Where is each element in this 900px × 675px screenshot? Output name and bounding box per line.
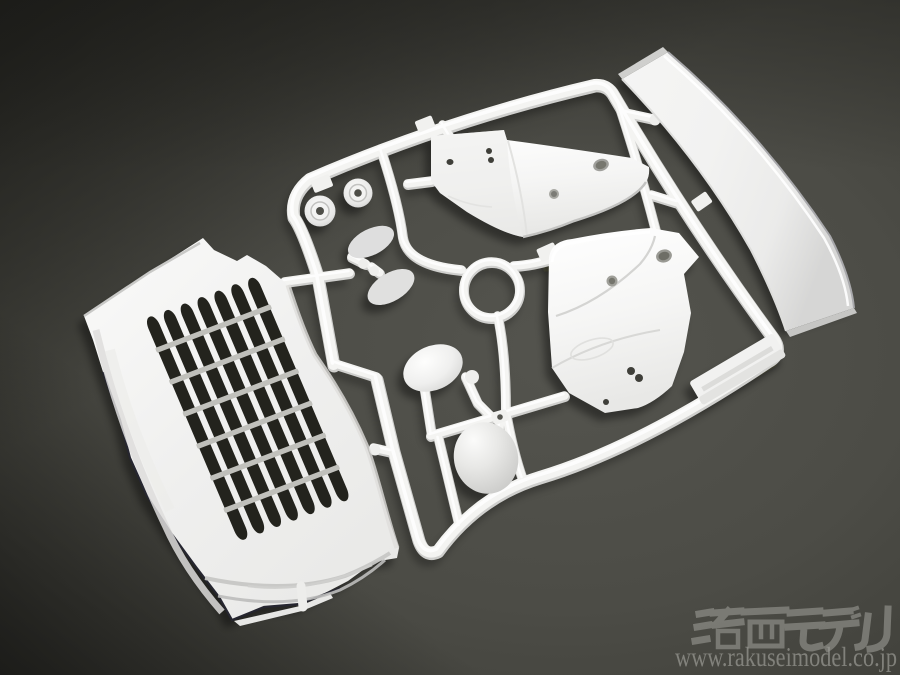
svg-text:www.rakuseimodel.co.jp: www.rakuseimodel.co.jp [675, 642, 897, 672]
